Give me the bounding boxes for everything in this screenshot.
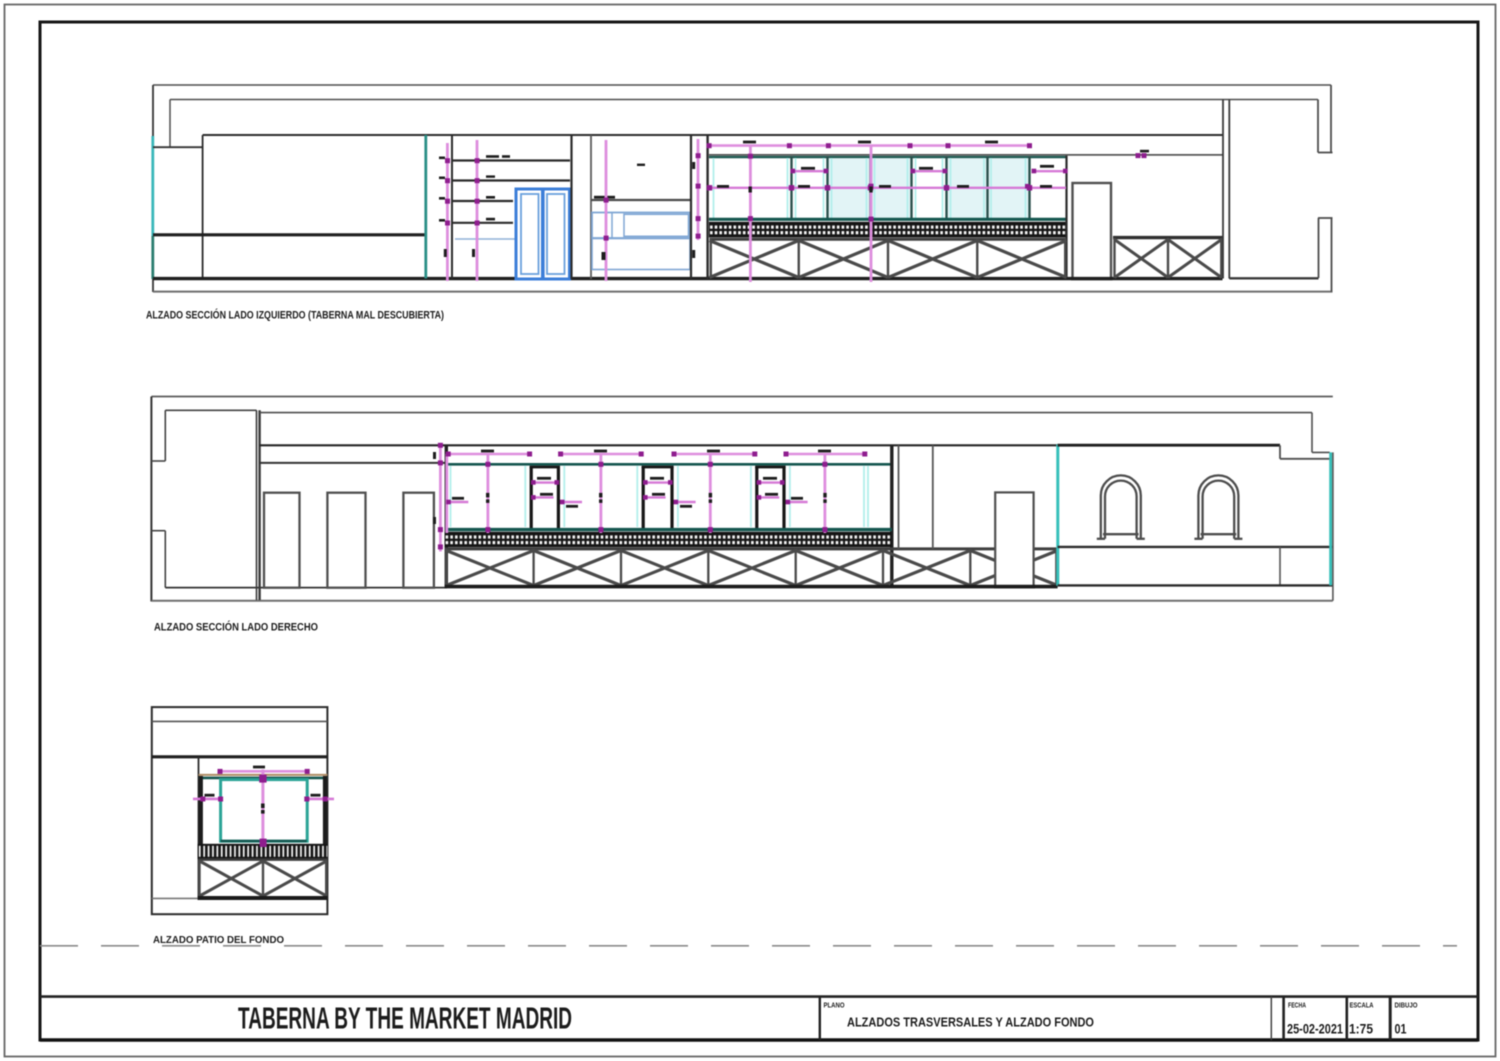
svg-text:FECHA: FECHA — [1288, 1003, 1306, 1010]
svg-text:DIBUJO: DIBUJO — [1395, 1003, 1418, 1010]
svg-text:PLANO: PLANO — [824, 1003, 845, 1010]
svg-text:ALZADOS TRASVERSALES Y ALZADO: ALZADOS TRASVERSALES Y ALZADO FONDO — [847, 1015, 1094, 1030]
svg-text:01: 01 — [1395, 1021, 1407, 1037]
svg-text:ALZADO SECCIÓN LADO DERECHO: ALZADO SECCIÓN LADO DERECHO — [154, 621, 318, 634]
svg-text:ALZADO PATIO DEL FONDO: ALZADO PATIO DEL FONDO — [153, 934, 284, 946]
svg-text:ESCALA: ESCALA — [1350, 1003, 1374, 1010]
svg-text:ALZADO SECCIÓN LADO IZQUIERDO: ALZADO SECCIÓN LADO IZQUIERDO (TABERNA M… — [146, 309, 444, 322]
svg-text:1:75: 1:75 — [1349, 1021, 1373, 1037]
svg-text:25-02-2021: 25-02-2021 — [1287, 1021, 1343, 1037]
svg-text:TABERNA BY THE MARKET MADRID: TABERNA BY THE MARKET MADRID — [238, 1001, 572, 1036]
